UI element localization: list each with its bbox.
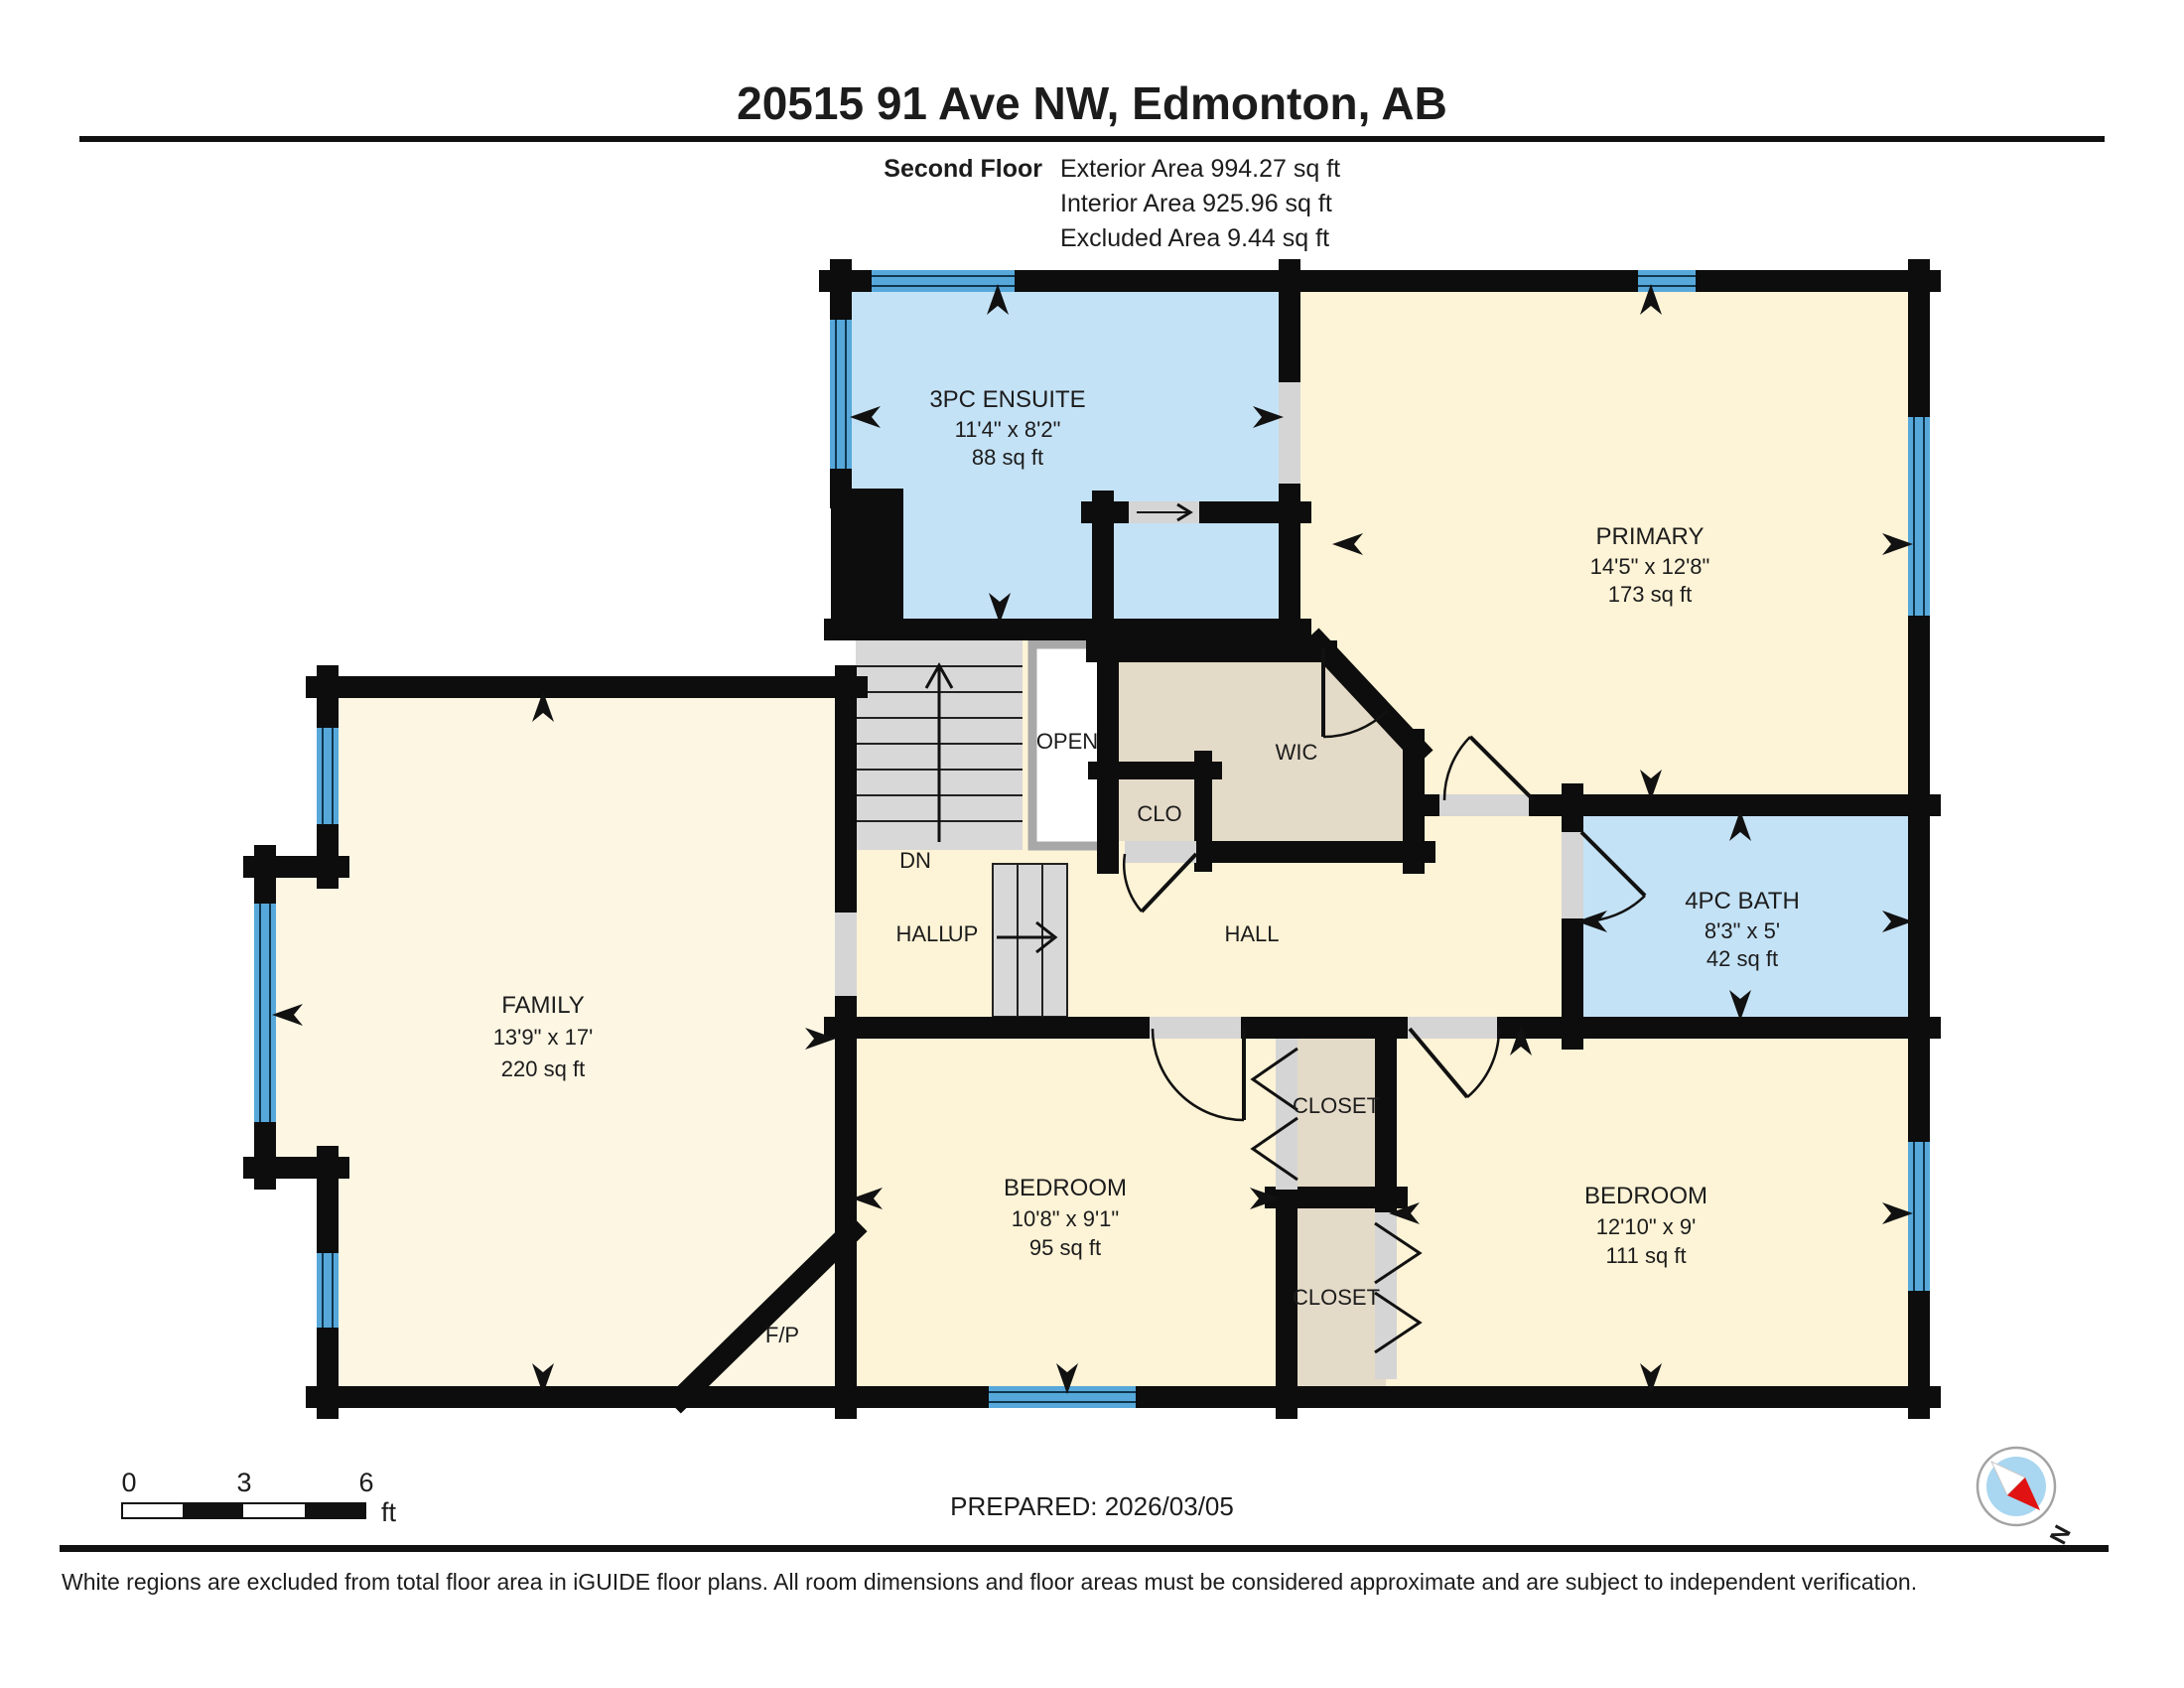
hall-right-label: HALL [1224, 921, 1279, 946]
compass-icon: N [1978, 1448, 2076, 1548]
hall-nook-fill [1414, 805, 1572, 1028]
primary-label: PRIMARY [1596, 523, 1705, 550]
primary-area: 173 sq ft [1608, 582, 1692, 607]
ensuite-pocket-door [1279, 382, 1300, 484]
closet1-label: CLOSET [1293, 1093, 1380, 1118]
family-hall-opening [835, 913, 857, 996]
wc-slider-door [1129, 501, 1199, 523]
window-marker [317, 728, 339, 824]
exterior-area-stat: Exterior Area 994.27 sq ft [1060, 155, 1340, 183]
bedroom2-dims: 12'10" x 9' [1596, 1214, 1697, 1239]
clo-door-opening [1125, 841, 1196, 863]
floor-label: Second Floor [884, 155, 1042, 183]
scale-tick-6: 6 [358, 1468, 373, 1497]
window-marker [254, 904, 276, 1122]
up-label: UP [948, 921, 979, 946]
fireplace-label: F/P [765, 1323, 799, 1347]
bath-area: 42 sq ft [1706, 946, 1778, 971]
bedroom2-label: BEDROOM [1584, 1183, 1707, 1209]
footer-divider [60, 1545, 2109, 1552]
clo-label: CLO [1137, 801, 1181, 826]
interior-area-stat: Interior Area 925.96 sq ft [1060, 190, 1332, 217]
floor-plan-page: 20515 91 Ave NW, Edmonton, AB Second Flo… [0, 0, 2184, 1688]
prepared-date: PREPARED: 2026/03/05 [950, 1491, 1234, 1521]
compass-n-label: N [2044, 1520, 2076, 1548]
bedroom1-area: 95 sq ft [1029, 1235, 1101, 1260]
window-marker [317, 1253, 339, 1328]
ensuite-label: 3PC ENSUITE [929, 386, 1085, 413]
family-label: FAMILY [501, 992, 585, 1019]
window-marker [1908, 1142, 1930, 1291]
window-marker [989, 1386, 1136, 1408]
header-divider [79, 136, 2105, 142]
scale-tick-3: 3 [236, 1468, 251, 1497]
family-dims: 13'9" x 17' [493, 1025, 594, 1050]
primary-door-opening [1439, 794, 1529, 816]
bedroom1-door-opening [1150, 1017, 1241, 1039]
bath-label: 4PC BATH [1685, 888, 1800, 914]
page-title: 20515 91 Ave NW, Edmonton, AB [737, 77, 1447, 129]
floor-plan-canvas: 20515 91 Ave NW, Edmonton, AB Second Flo… [0, 0, 2184, 1688]
hall-left-label: HALL [895, 921, 950, 946]
disclaimer-text: White regions are excluded from total fl… [62, 1569, 1917, 1595]
family-area: 220 sq ft [501, 1056, 585, 1081]
window-marker [1908, 417, 1930, 616]
scale-unit: ft [381, 1497, 397, 1527]
bedroom1-label: BEDROOM [1004, 1175, 1127, 1201]
window-marker [872, 270, 1015, 292]
excluded-area-stat: Excluded Area 9.44 sq ft [1060, 224, 1329, 252]
ensuite-area: 88 sq ft [972, 445, 1043, 470]
stairs-down [856, 640, 1023, 850]
closet2-label: CLOSET [1293, 1285, 1380, 1310]
dn-label: DN [899, 848, 931, 873]
bath-dims: 8'3" x 5' [1705, 918, 1780, 943]
open-label: OPEN [1036, 729, 1098, 754]
wic-label: WIC [1276, 740, 1318, 765]
stairs-up [993, 864, 1067, 1017]
scale-bar: 0 3 6 ft [121, 1468, 396, 1527]
primary-dims: 14'5" x 12'8" [1590, 554, 1710, 579]
ensuite-dims: 11'4" x 8'2" [955, 417, 1061, 442]
window-marker [830, 320, 852, 469]
bedroom2-door-opening [1408, 1017, 1497, 1039]
bath-door-opening [1562, 832, 1583, 918]
window-marker [1638, 270, 1696, 292]
bedroom2-area: 111 sq ft [1605, 1243, 1686, 1268]
bedroom1-dims: 10'8" x 9'1" [1012, 1206, 1119, 1231]
scale-tick-0: 0 [121, 1468, 136, 1497]
